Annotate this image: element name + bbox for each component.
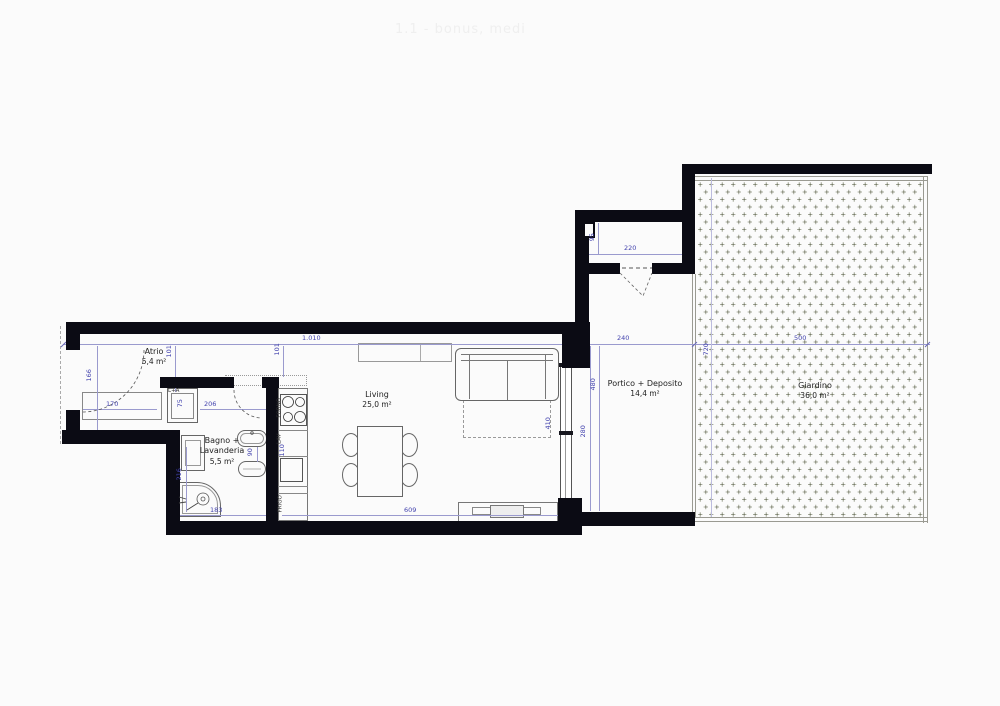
wall (66, 322, 80, 350)
washer-dryer-label: L+A (168, 389, 179, 395)
dining-table (357, 426, 403, 497)
room-label-bagno: Bagno + Lavanderia 5,5 m² (186, 436, 258, 467)
wall-cabinet (358, 343, 452, 362)
dimension-line-portico-a (599, 346, 600, 511)
wall (166, 521, 582, 535)
dimension-line-main (63, 344, 930, 345)
wall (652, 263, 695, 274)
dim-offset-b: 101 (274, 336, 281, 362)
room-name: Bagno + (186, 436, 258, 446)
dim-total-width: 1.010 (302, 335, 321, 342)
wall (160, 377, 234, 388)
wall (578, 512, 695, 526)
floor-plan-canvas: 1.1 - bonus, medi (0, 0, 1000, 706)
sink-label: LAV (277, 427, 283, 451)
dim-deposito-depth: 95 (589, 224, 596, 250)
room-area: 36,0 m² (781, 391, 849, 401)
dimension-line-living-bottom (282, 515, 559, 516)
wall (690, 164, 932, 174)
room-name: Living (346, 390, 408, 400)
wall (66, 322, 578, 334)
sofa-back-line (461, 354, 553, 355)
dimension-line-closet (83, 409, 157, 410)
dimension-line-deposito (585, 254, 683, 255)
section-line (60, 326, 61, 444)
dim-closet: 170 (106, 401, 118, 408)
dim-hall: 206 (204, 401, 216, 408)
stove (280, 394, 307, 426)
wall (682, 164, 695, 274)
room-name: Lavanderia (186, 446, 258, 456)
room-name: Portico + Deposito (594, 379, 696, 389)
room-label-giardino: Giardino 36,0 m² (781, 381, 849, 401)
wall-cabinet-divider (420, 344, 421, 361)
room-label-portico: Portico + Deposito 14,4 m² (594, 379, 696, 399)
dim-garden-depth: 720 (703, 336, 710, 362)
fridge-label: FRIGO (278, 492, 284, 516)
room-area: 5,5 m² (186, 457, 258, 467)
plan-title-watermark: 1.1 - bonus, medi (395, 22, 526, 37)
room-area: 25,0 m² (346, 400, 408, 410)
room-name: Atrio (122, 347, 186, 357)
oven-label: FORNO (277, 396, 283, 420)
dim-living-bottom: 609 (404, 507, 416, 514)
dim-deposito-width: 220 (624, 245, 636, 252)
garden-fence-top (695, 176, 928, 181)
sofa-seat-divider (507, 360, 508, 400)
room-label-atrio: Atrio 5,4 m² (122, 347, 186, 367)
room-label-living: Living 25,0 m² (346, 390, 408, 410)
dim-sofa-zone: 410 (545, 410, 552, 436)
dimension-line-offset-b (283, 346, 284, 377)
sofa-armrest (545, 354, 546, 399)
glass-door-cap (559, 431, 573, 435)
room-name: Giardino (781, 381, 849, 391)
sofa-armrest (469, 354, 470, 399)
wall (575, 210, 695, 222)
room-area: 14,4 m² (594, 389, 696, 399)
dim-bath-bottom: 183 (210, 507, 222, 514)
dim-portico-width: 240 (617, 335, 629, 342)
dim-garden-width: 500 (794, 335, 806, 342)
dim-bath-side: 216 (176, 461, 183, 487)
dimension-line-hall (200, 409, 268, 410)
wall (575, 263, 620, 274)
dimension-line-entry (97, 346, 98, 430)
garden-fence-right (923, 176, 928, 523)
room-area: 5,4 m² (122, 357, 186, 367)
radiator-center (490, 505, 524, 518)
atrio-closet (82, 392, 162, 420)
deposito-door-fold (620, 273, 652, 296)
wall (62, 430, 180, 444)
garden-fence-bottom (695, 517, 928, 522)
dimension-line-deposito-depth (598, 223, 599, 254)
bathroom-door-arc (234, 390, 262, 418)
dim-entry-door: 166 (86, 362, 93, 388)
counter-divider (278, 486, 308, 487)
dim-portico-seg-b: 280 (580, 418, 587, 444)
garden-paving-pattern (697, 181, 923, 518)
dimension-line-bath-bottom (180, 515, 266, 516)
dimension-line-garden-depth (711, 178, 712, 517)
